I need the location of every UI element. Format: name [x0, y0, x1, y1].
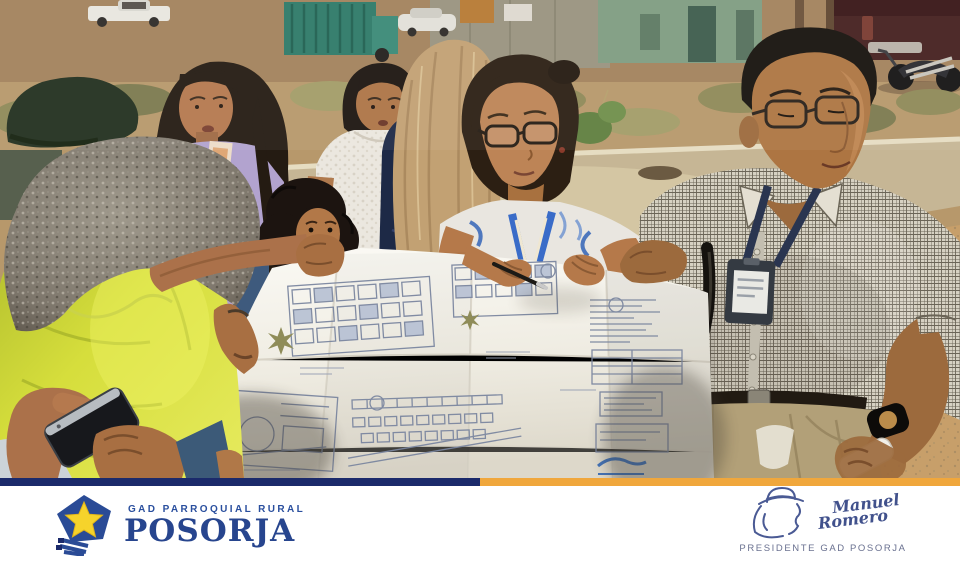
brand-name: POSORJA: [124, 516, 305, 548]
signature-last-name: Romero: [817, 507, 902, 531]
signature-script: Manuel Romero: [816, 493, 902, 531]
screenshot: GAD PARROQUIAL RURAL POSORJA Manuel Rome…: [0, 0, 960, 568]
footer-banner: GAD PARROQUIAL RURAL POSORJA Manuel Rome…: [0, 478, 960, 568]
posorja-star-emblem-icon: [54, 494, 114, 556]
id-badge: [724, 257, 775, 325]
president-signature-block: Manuel Romero PRESIDENTE GAD POSORJA: [708, 484, 938, 554]
manhole: [638, 166, 682, 180]
hat-man-line-art-icon: [745, 484, 815, 540]
photo-community-plan-review: [0, 0, 960, 478]
gad-posorja-logo: GAD PARROQUIAL RURAL POSORJA: [54, 494, 305, 556]
signature-title: PRESIDENTE GAD POSORJA: [708, 543, 938, 554]
footer-rule-navy: [0, 478, 480, 486]
